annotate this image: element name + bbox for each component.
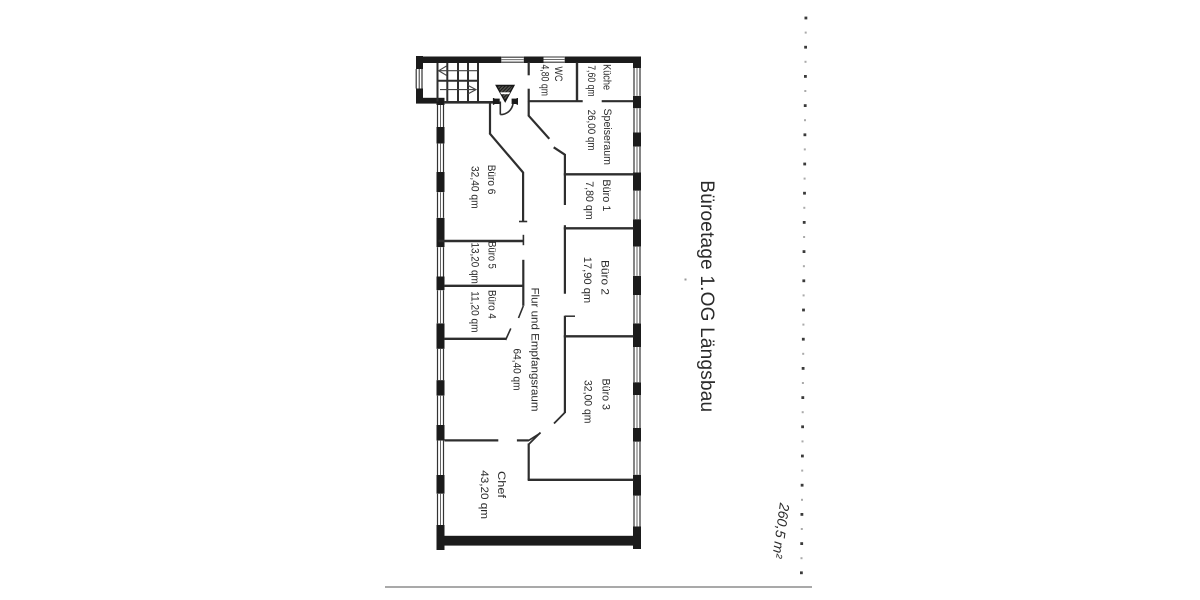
svg-text:Küche: Küche [601,64,613,90]
svg-text:13,20 qm: 13,20 qm [469,243,481,284]
svg-text:Büroetage 1.OG Längsbau: Büroetage 1.OG Längsbau [696,180,718,412]
svg-text:7,80 qm: 7,80 qm [583,181,595,220]
svg-text:WC: WC [552,67,564,82]
svg-text:11,20 qm: 11,20 qm [469,291,481,332]
svg-text:Büro 6: Büro 6 [485,165,497,195]
svg-text:43,20 qm: 43,20 qm [478,470,490,519]
svg-text:Chef: Chef [495,471,507,499]
svg-text:64,40 qm: 64,40 qm [511,349,523,391]
svg-text:Büro 4: Büro 4 [486,290,498,319]
svg-text:4,80 qm: 4,80 qm [539,65,551,97]
svg-text:26,00 qm: 26,00 qm [585,110,597,151]
svg-text:Büro 2: Büro 2 [599,260,611,295]
svg-text:32,40 qm: 32,40 qm [469,166,481,209]
svg-text:Büro 3: Büro 3 [600,379,612,411]
svg-text:32,00 qm: 32,00 qm [582,380,594,424]
svg-text:Büro 1: Büro 1 [600,179,612,211]
svg-text:7,60 qm: 7,60 qm [585,65,597,97]
svg-text:Büro 5: Büro 5 [486,241,498,268]
svg-text:Speiseraum: Speiseraum [601,109,613,166]
svg-text:Flur und Empfangsraum: Flur und Empfangsraum [529,288,541,412]
svg-text:17,90 qm: 17,90 qm [581,257,593,304]
